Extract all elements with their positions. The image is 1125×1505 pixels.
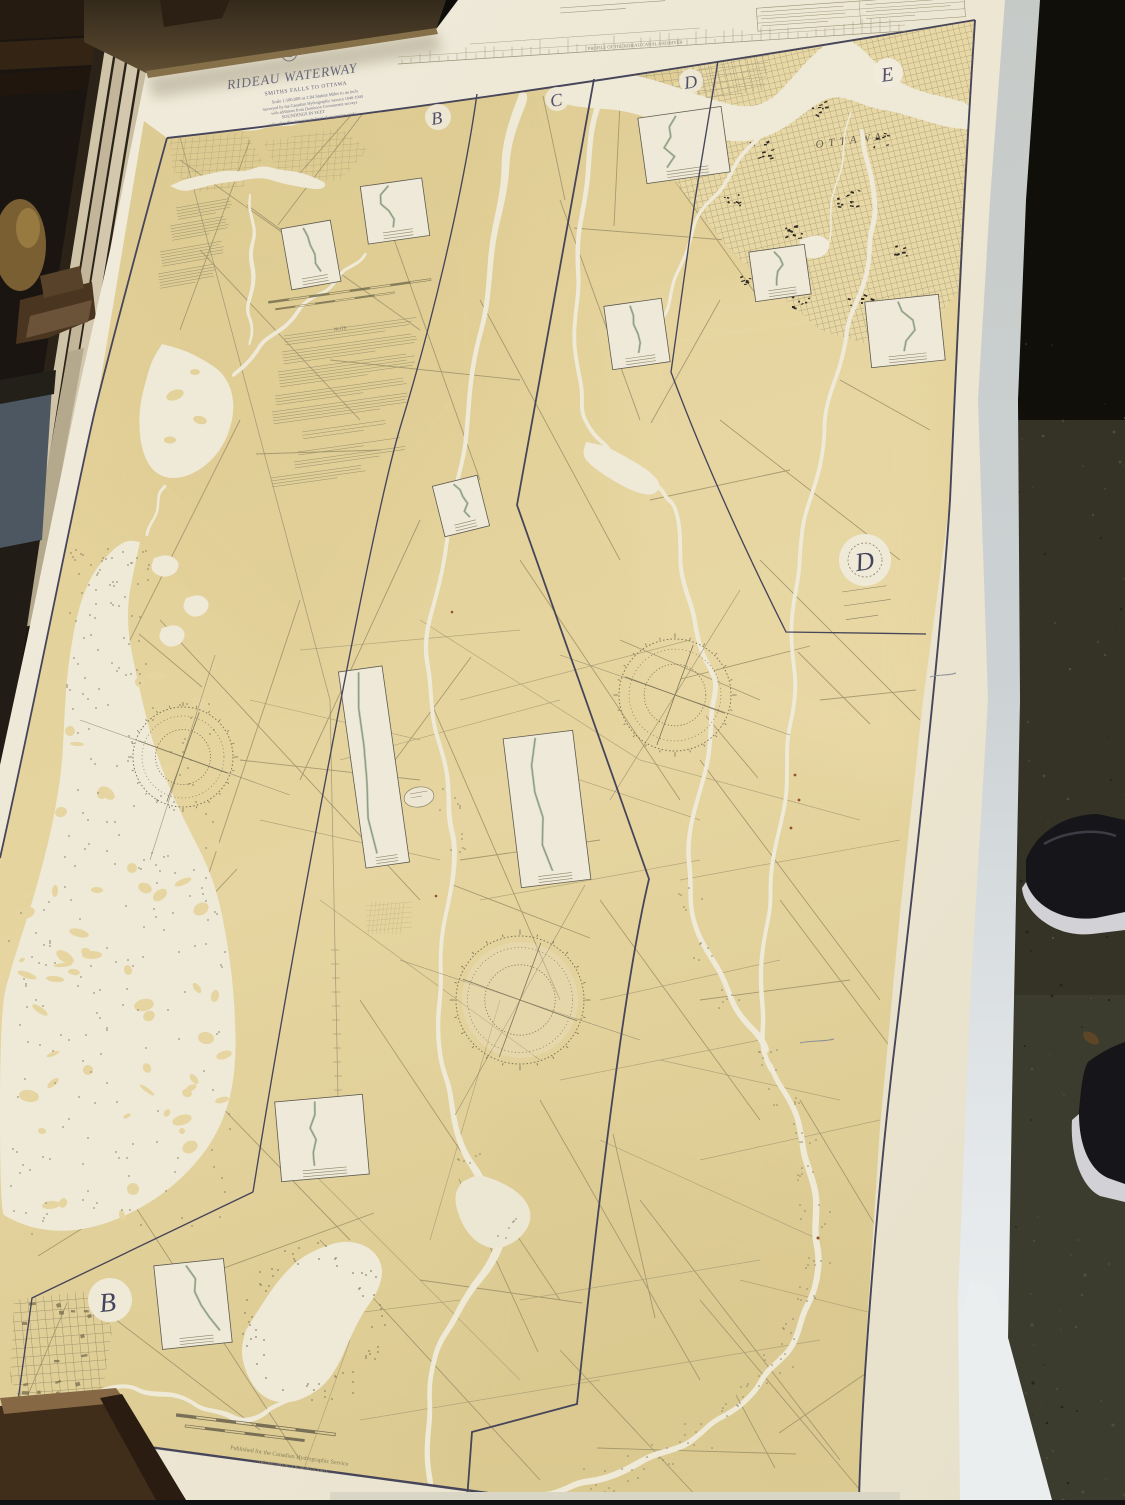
svg-text:B: B <box>98 1286 118 1318</box>
svg-text:D: D <box>682 71 699 93</box>
